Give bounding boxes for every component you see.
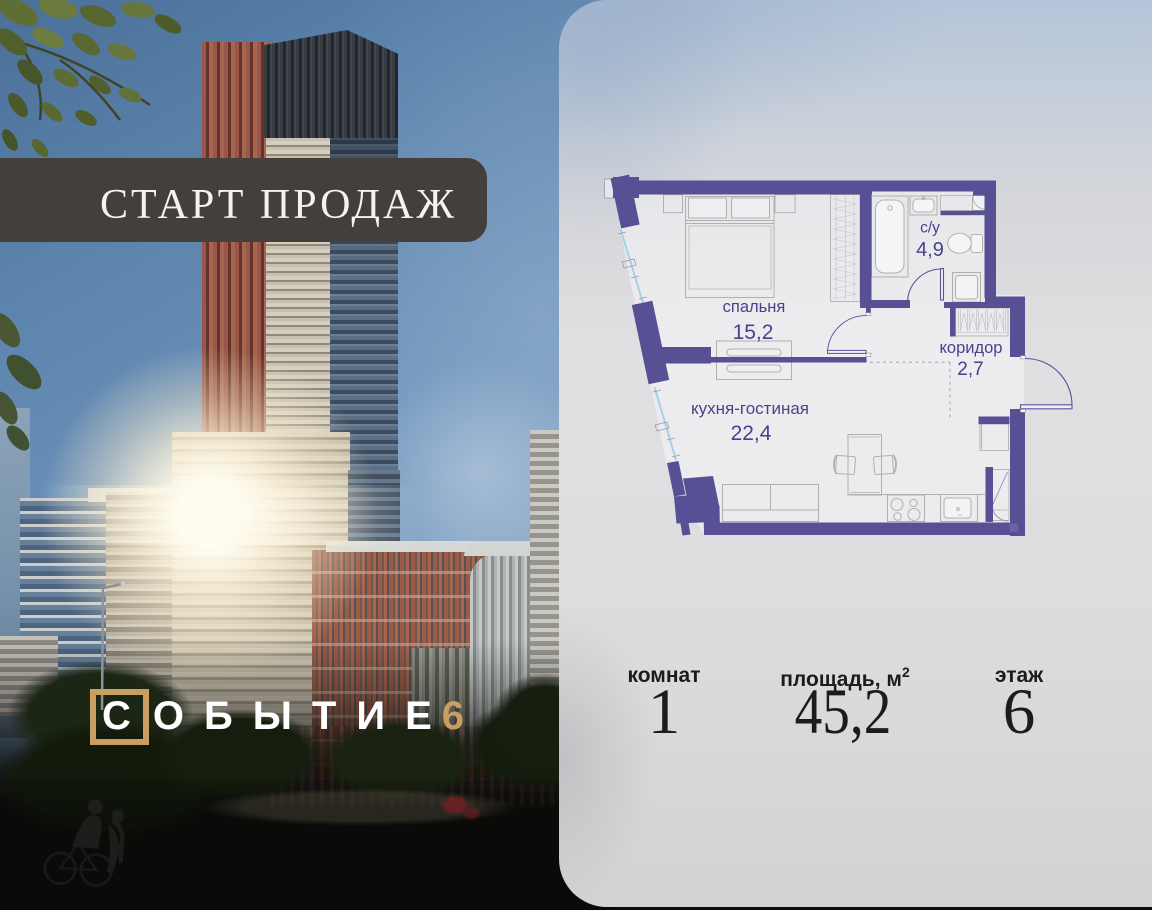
svg-text:15,2: 15,2 xyxy=(733,321,774,344)
svg-text:2,7: 2,7 xyxy=(957,359,983,380)
svg-text:коридор: коридор xyxy=(940,339,1003,357)
svg-text:22,4: 22,4 xyxy=(731,422,772,445)
svg-text:спальня: спальня xyxy=(723,298,786,316)
svg-text:с/у: с/у xyxy=(920,220,940,237)
svg-text:4,9: 4,9 xyxy=(916,239,944,261)
svg-text:кухня-гостиная: кухня-гостиная xyxy=(691,399,809,418)
